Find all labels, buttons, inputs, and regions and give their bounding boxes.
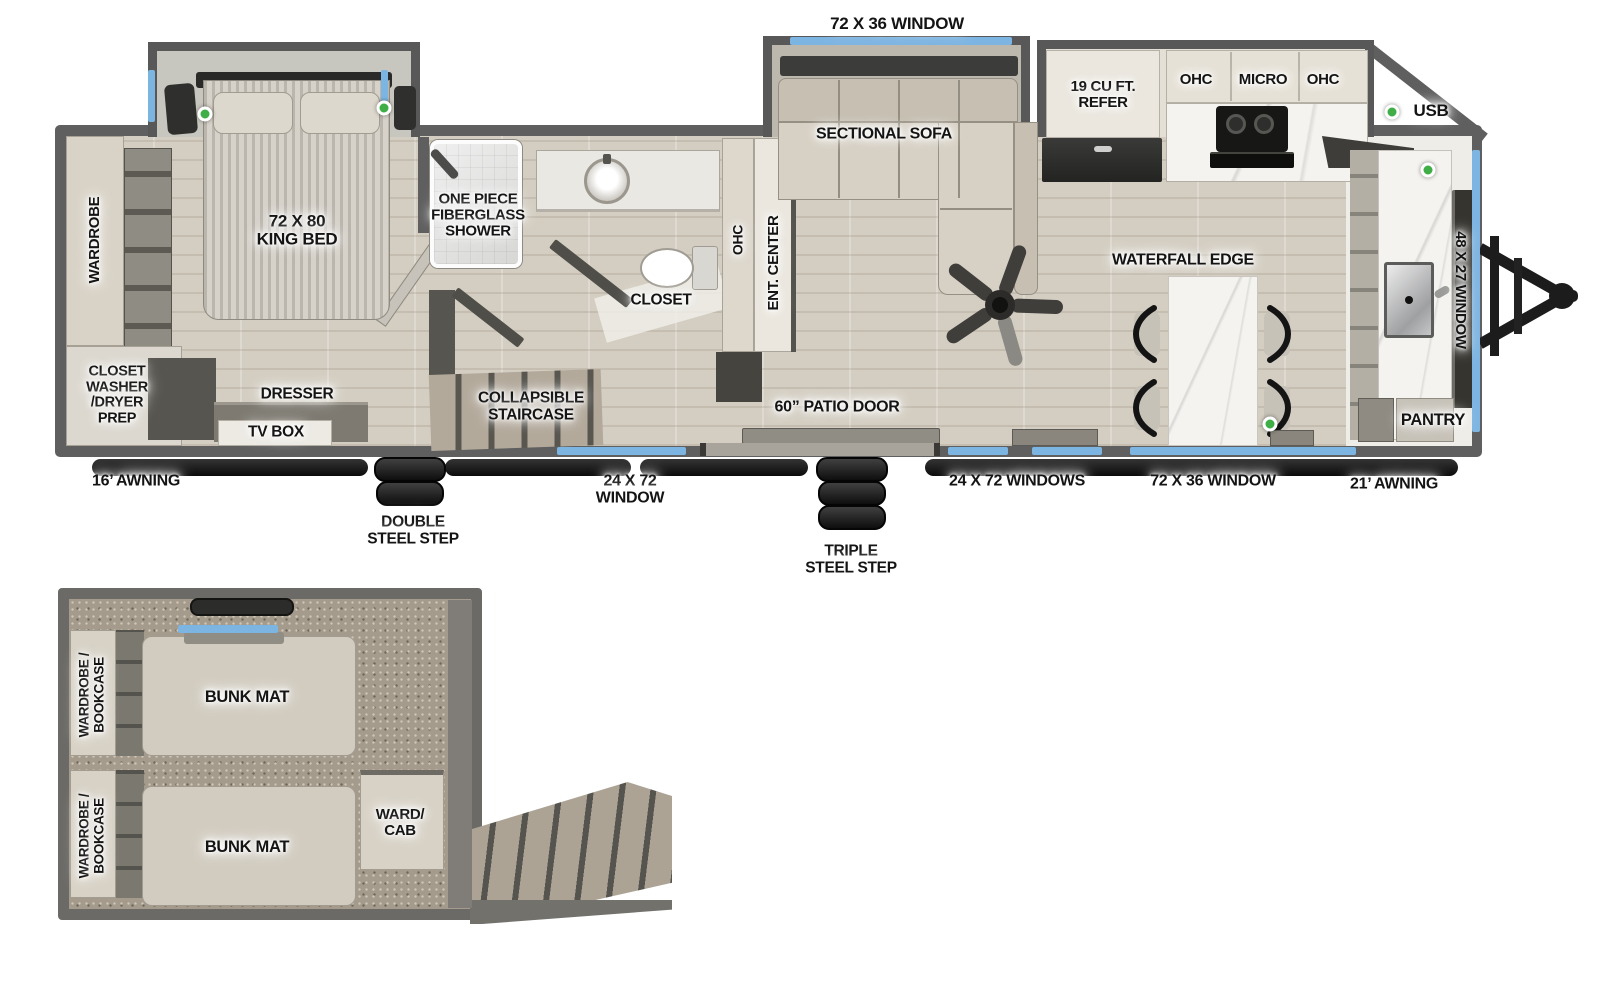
trailer-hitch-icon [1478,236,1578,356]
stove-burner-right [1254,114,1274,134]
usb-legend-dot [1385,105,1400,120]
sink-drain [1405,296,1413,304]
label-usb-legend: USB [1414,102,1449,120]
label-tv-box: TV BOX [248,425,304,442]
window-48x27-strip [1472,150,1480,432]
label-closet-washer: CLOSET WASHER /DRYER PREP [86,365,148,428]
label-king-bed: 72 X 80 KING BED [257,213,338,250]
triple-steel-step [818,505,886,530]
bunk-shelf-column-bottom [116,770,144,898]
patio-door-threshold [700,443,940,456]
label-closet: CLOSET [630,293,691,310]
bunk-window-strip [178,625,278,633]
label-bunk-mat-top: BUNK MAT [205,689,289,707]
pantry-base-cabinet [1358,398,1394,442]
island-chair-icon [1260,304,1302,364]
stove-burner-left [1226,114,1246,134]
ent-center-base [716,352,762,402]
label-dresser: DRESSER [261,387,334,404]
ohc-band-gap-2 [1298,52,1300,101]
triple-steel-step [818,481,886,506]
double-steel-step [376,481,444,506]
bed-pillow-right [300,92,380,134]
bench-cabinet-b [1270,430,1314,446]
sofa-back-shelf [780,56,1018,76]
window-72x36-strip-bottom [1130,447,1356,455]
label-pantry: PANTRY [1401,412,1465,430]
bunk-ledge [184,632,284,644]
ceiling-fan-icon [933,238,1067,372]
bunk-shelf-column-top [116,630,144,756]
usb-dot [198,107,213,122]
toilet-tank [692,246,718,290]
bedroom-slide-window-left [148,70,155,122]
label-ohc-vert: OHC [730,225,745,255]
label-patio-door: 60” PATIO DOOR [774,398,899,415]
label-shower: ONE PIECE FIBERGLASS SHOWER [431,192,525,241]
label-ward-cab: WARD/ CAB [376,807,425,839]
bath-sink [584,158,630,204]
usb-dot [1421,163,1436,178]
bunk-staircase-slab [470,900,672,924]
bedroom-drawer-column [124,148,172,362]
label-collapsible-staircase: COLLAPSIBLE STAIRCASE [478,390,584,423]
bedroom-nightstand-right [394,86,416,130]
label-triple-step: TRIPLE STEEL STEP [805,543,896,576]
pantry-cabinet-column [1350,150,1378,440]
label-sectional-sofa: SECTIONAL SOFA [816,125,952,142]
label-window-72x36-top: 72 X 36 WINDOW [830,15,964,33]
patio-door-panel [742,428,940,444]
label-windows-24x72: 24 X 72 WINDOWS [949,472,1085,489]
ohc-band-gap-1 [1230,52,1232,101]
triple-steel-step [816,457,888,482]
bedroom-nightstand-left [164,83,198,135]
kitchen-counter-left [1042,138,1162,182]
bench-cabinet [1012,429,1098,446]
bunk-roof-handle [190,598,294,616]
label-window-72x36-bottom: 72 X 36 WINDOW [1150,472,1276,489]
label-wardrobe: WARDROBE [87,197,103,284]
label-ohc-left: OHC [1180,72,1212,88]
label-window-48x27: 48 X 27 WINDOW [1452,231,1468,349]
label-ent-center: ENT. CENTER [766,215,782,310]
label-window-24x72: 24 X 72 WINDOW [596,473,664,508]
sofa-slide-window [790,37,1012,45]
window-24x72-strip-c [1032,447,1102,455]
label-ohc-right: OHC [1307,72,1339,88]
bunk-right-wall-shade [448,600,472,908]
label-micro: MICRO [1239,72,1288,88]
label-double-step: DOUBLE STEEL STEP [367,514,458,547]
label-awning-16: 16’ AWNING [92,472,180,489]
oven-front [1210,152,1294,168]
island-chair-icon [1122,378,1164,438]
label-bunk-wardrobe-top: WARDROBE / BOOKCASE [77,653,106,738]
bedroom-bath-wall [418,137,429,233]
kitchen-faucet-left [1094,146,1112,152]
sofa-chaise-gap [940,208,1012,210]
usb-dot [377,101,392,116]
label-bunk-mat-bottom: BUNK MAT [205,839,289,857]
sofa-seat-gap-3 [958,80,960,198]
label-bunk-wardrobe-bottom: WARDROBE / BOOKCASE [77,794,106,879]
bath-linen-cabinet [429,290,455,376]
label-waterfall-edge: WATERFALL EDGE [1112,251,1254,268]
island-chair-icon [1122,304,1164,364]
usb-dot [1263,417,1278,432]
bath-faucet [603,154,611,164]
floorplan-canvas: 72 X 36 WINDOW SECTIONAL SOFA 19 CU FT. … [0,0,1600,995]
bed-pillow-left [213,92,293,134]
label-refer: 19 CU FT. REFER [1071,79,1136,111]
toilet-bowl [640,248,694,288]
awning-bar-mid-b [640,459,808,476]
waterfall-island [1168,276,1258,446]
window-24x72-strip-b [948,447,1008,455]
double-steel-step [374,457,446,482]
window-24x72-strip [557,447,686,455]
bedroom-corner-cabinet [148,358,216,440]
label-awning-21: 21’ AWNING [1350,475,1438,492]
